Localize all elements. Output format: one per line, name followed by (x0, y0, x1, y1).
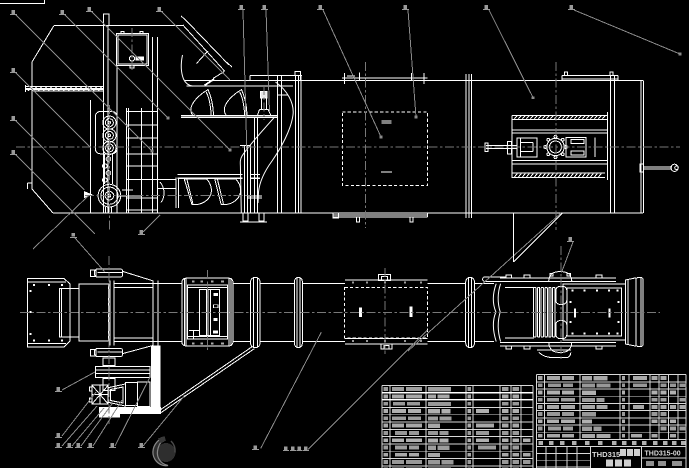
svg-text:THD315: THD315 (592, 450, 621, 459)
svg-text:THD315-00: THD315-00 (645, 451, 681, 458)
